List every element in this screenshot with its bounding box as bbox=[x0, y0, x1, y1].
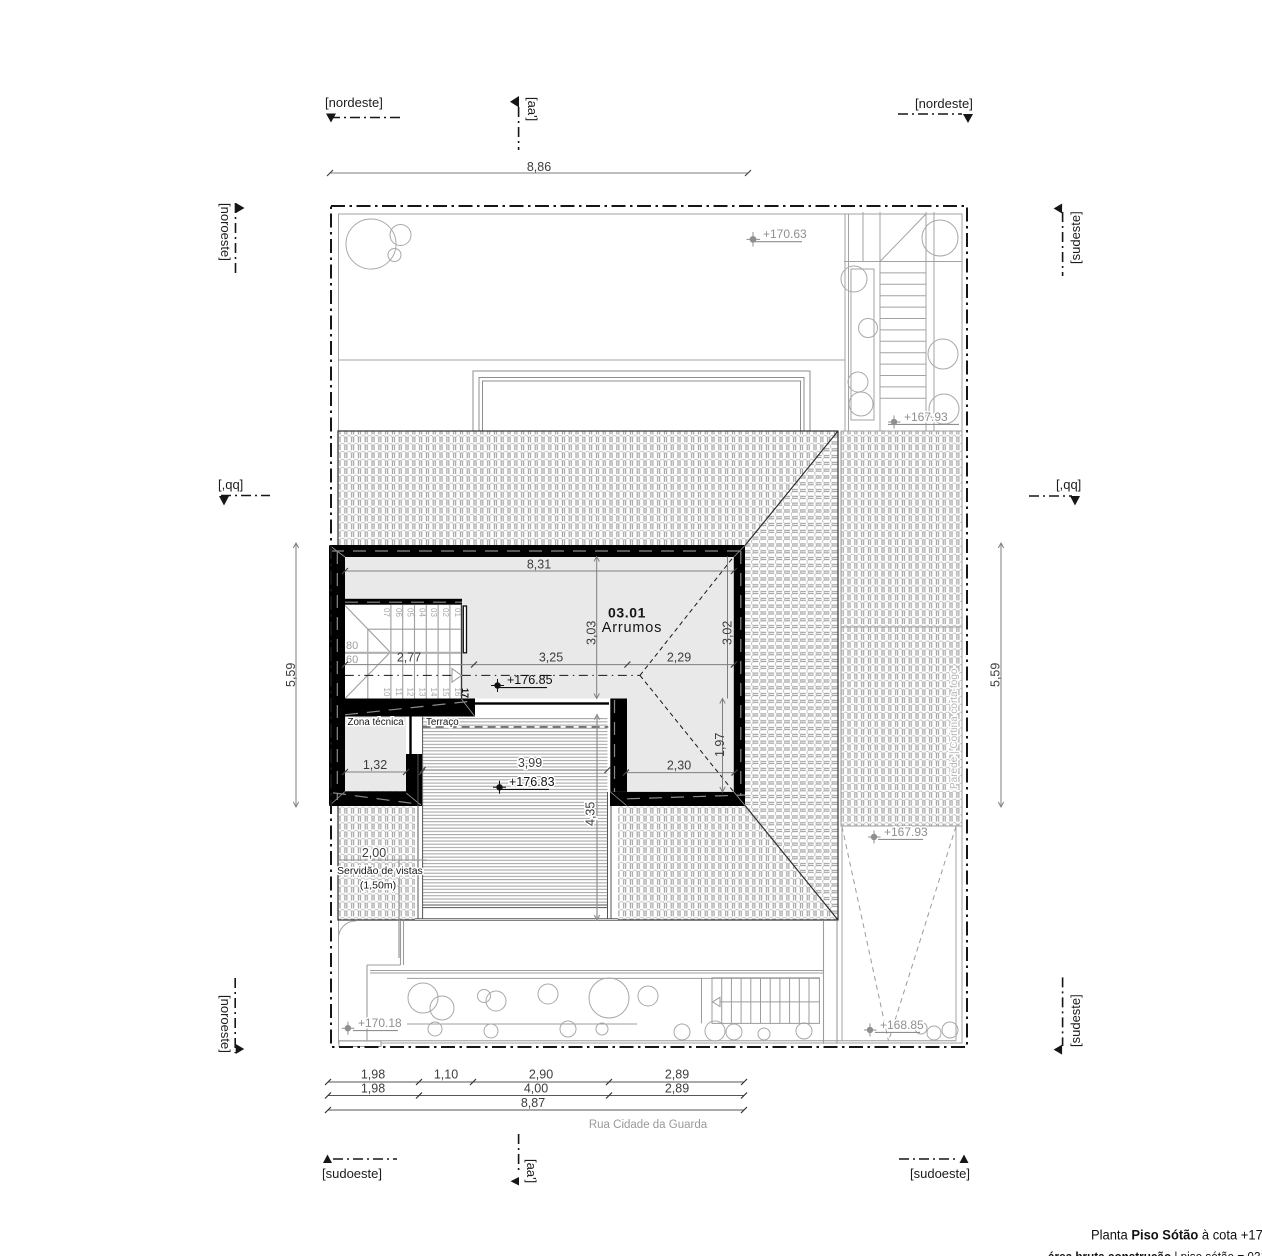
svg-text:8,31: 8,31 bbox=[527, 558, 551, 572]
svg-text:8,87: 8,87 bbox=[521, 1096, 545, 1110]
svg-text:4,00: 4,00 bbox=[524, 1082, 548, 1096]
svg-text:+176.85: +176.85 bbox=[507, 673, 553, 687]
svg-text:2,89: 2,89 bbox=[665, 1082, 689, 1096]
svg-text:11: 11 bbox=[394, 688, 403, 697]
svg-text:1,97: 1,97 bbox=[713, 733, 727, 757]
svg-text:2,30: 2,30 bbox=[667, 759, 691, 773]
svg-text:13: 13 bbox=[417, 688, 426, 697]
svg-text:2,00: 2,00 bbox=[362, 846, 386, 860]
svg-text:1,10: 1,10 bbox=[434, 1068, 458, 1082]
svg-text:[sudeste]: [sudeste] bbox=[1068, 211, 1083, 264]
svg-text:[aa']: [aa'] bbox=[525, 97, 540, 121]
svg-text:04: 04 bbox=[417, 608, 426, 617]
svg-text:1,32: 1,32 bbox=[363, 758, 387, 772]
svg-text:+176.83: +176.83 bbox=[509, 775, 555, 789]
svg-text:[sudoeste]: [sudoeste] bbox=[322, 1166, 382, 1181]
svg-text:3,25: 3,25 bbox=[539, 651, 563, 665]
svg-text:14: 14 bbox=[429, 688, 438, 697]
svg-text:área bruta construção | piso s: área bruta construção | piso sótão = 031 bbox=[1048, 1249, 1262, 1256]
svg-text:+170.63: +170.63 bbox=[763, 227, 807, 241]
svg-text:17: 17 bbox=[460, 688, 470, 698]
svg-text:[noroeste]: [noroeste] bbox=[218, 995, 233, 1053]
svg-text:(1,50m): (1,50m) bbox=[360, 880, 396, 892]
svg-text:3,02: 3,02 bbox=[721, 621, 735, 645]
svg-text:+167.93: +167.93 bbox=[884, 825, 928, 839]
svg-text:8,86: 8,86 bbox=[527, 160, 551, 174]
svg-text:5,59: 5,59 bbox=[989, 663, 1003, 687]
svg-text:Terraço: Terraço bbox=[426, 717, 459, 728]
svg-text:5,59: 5,59 bbox=[284, 663, 298, 687]
svg-text:03.01: 03.01 bbox=[608, 605, 646, 621]
svg-text:03: 03 bbox=[429, 608, 438, 617]
svg-text:1,98: 1,98 bbox=[361, 1082, 385, 1096]
svg-text:[sudoeste]: [sudoeste] bbox=[910, 1166, 970, 1181]
svg-text:05: 05 bbox=[406, 608, 415, 617]
svg-text:06: 06 bbox=[394, 608, 403, 617]
svg-text:+167.93: +167.93 bbox=[904, 410, 948, 424]
svg-text:2,77: 2,77 bbox=[397, 651, 421, 665]
svg-text:80: 80 bbox=[346, 640, 358, 652]
svg-text:2,90: 2,90 bbox=[529, 1068, 553, 1082]
svg-text:1,98: 1,98 bbox=[361, 1068, 385, 1082]
svg-text:3,03: 3,03 bbox=[585, 621, 599, 645]
svg-text:01: 01 bbox=[453, 608, 462, 617]
svg-text:Arrumos: Arrumos bbox=[602, 620, 662, 636]
svg-text:[,qq]: [,qq] bbox=[1056, 477, 1081, 492]
svg-text:Zona técnica: Zona técnica bbox=[348, 717, 405, 728]
svg-text:Planta Piso Sótão à cota +178: Planta Piso Sótão à cota +178 bbox=[1091, 1228, 1262, 1243]
svg-text:Rua Cidade da Guarda: Rua Cidade da Guarda bbox=[589, 1119, 708, 1131]
svg-text:[nordeste]: [nordeste] bbox=[325, 95, 383, 110]
svg-text:[noroeste]: [noroeste] bbox=[218, 203, 233, 261]
svg-text:3,99: 3,99 bbox=[518, 756, 542, 770]
svg-text:10: 10 bbox=[382, 688, 391, 697]
svg-text:[aa']: [aa'] bbox=[524, 1159, 539, 1183]
svg-text:+170.18: +170.18 bbox=[358, 1016, 402, 1030]
svg-text:2,89: 2,89 bbox=[665, 1068, 689, 1082]
svg-text:Parede | Cortina corta-fogo: Parede | Cortina corta-fogo bbox=[949, 668, 960, 789]
svg-text:15: 15 bbox=[441, 688, 450, 697]
svg-text:[sudeste]: [sudeste] bbox=[1068, 994, 1083, 1047]
svg-text:07: 07 bbox=[382, 608, 391, 617]
svg-text:[nordeste]: [nordeste] bbox=[915, 96, 973, 111]
svg-text:2,29: 2,29 bbox=[667, 651, 691, 665]
svg-text:4,35: 4,35 bbox=[584, 802, 598, 826]
svg-text:02: 02 bbox=[441, 608, 450, 617]
svg-text:Servidão de vistas: Servidão de vistas bbox=[337, 865, 423, 877]
svg-text:12: 12 bbox=[406, 688, 415, 697]
svg-text:[,qq]: [,qq] bbox=[218, 477, 243, 492]
svg-text:+168.85: +168.85 bbox=[880, 1018, 924, 1032]
